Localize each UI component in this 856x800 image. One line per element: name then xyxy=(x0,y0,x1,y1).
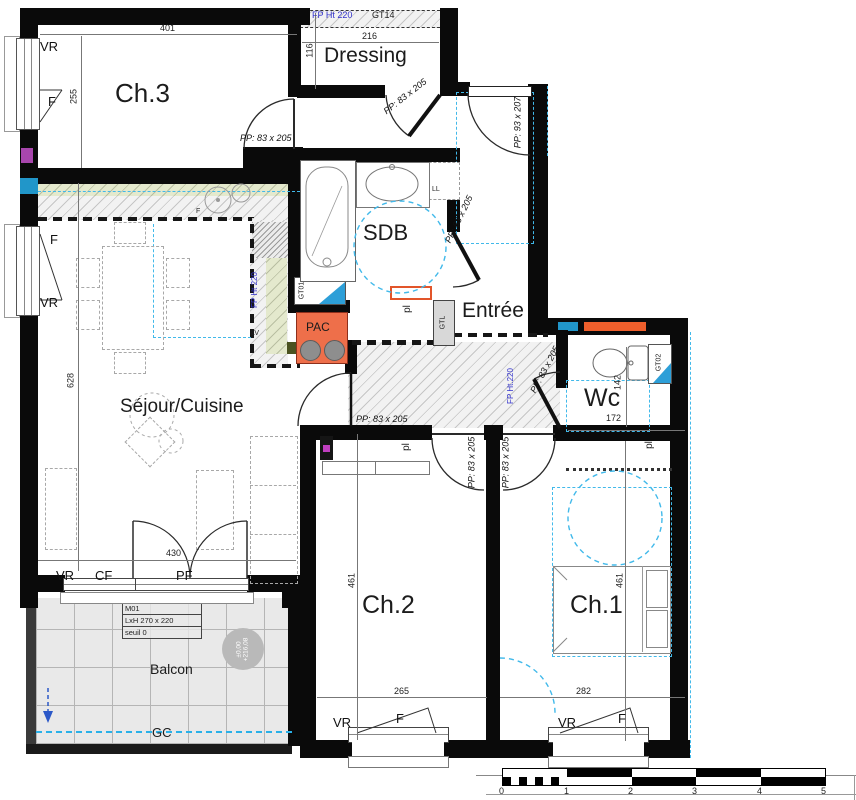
scale-seg-1 xyxy=(503,777,567,785)
scale-seg-5 xyxy=(761,777,825,785)
window-label-vr: VR xyxy=(333,716,351,729)
bathtub-basin xyxy=(306,167,348,267)
dishwasher-label: LV xyxy=(251,330,259,337)
room-label-sejour: Séjour/Cuisine xyxy=(120,397,244,416)
gt14-label: GT14 xyxy=(372,11,395,20)
room-label-ch1: Ch.1 xyxy=(570,593,623,618)
window-label-vr: VR xyxy=(558,716,576,729)
door-arc-ch1 xyxy=(503,438,555,490)
glazing-label-hall: FP Ht.220 xyxy=(507,363,515,409)
dim-line xyxy=(626,347,627,427)
door-leaf-dressing xyxy=(409,95,440,136)
sheet-frame-corner xyxy=(854,775,855,800)
room-label-entree: Entrée xyxy=(462,300,524,321)
dim-line xyxy=(625,441,626,741)
door-leaf-sdb xyxy=(453,232,479,280)
dim-label-401: 401 xyxy=(160,24,175,33)
dim-line xyxy=(81,36,82,168)
window-label-vr: VR xyxy=(40,296,58,309)
dim-label-282: 282 xyxy=(576,687,591,696)
room-label-balcon: Balcon xyxy=(150,662,193,676)
dim-label-255: 255 xyxy=(70,87,79,107)
kitchen-sink-drain xyxy=(216,198,220,202)
dim-label-461-ch1: 461 xyxy=(616,571,625,591)
door-arc-sdb xyxy=(453,280,479,287)
dim-label-628: 628 xyxy=(67,371,76,391)
toilet-tank xyxy=(628,346,648,380)
glazing-label-kitchen: FP Ht 220 xyxy=(251,267,259,313)
door-arc-sejour xyxy=(298,373,351,426)
scale-bar xyxy=(502,768,826,786)
door-label-entrance: PP: 93 x 207 xyxy=(514,93,523,153)
glazing-label-top: FP Ht 220 xyxy=(312,11,352,20)
window-label-pf: PF xyxy=(176,569,193,582)
dim-line xyxy=(38,560,296,561)
dim-line xyxy=(78,183,79,571)
washbasin xyxy=(366,167,418,201)
dim-label-142: 142 xyxy=(614,373,623,393)
french-door-arc-right xyxy=(190,521,247,578)
dim-line xyxy=(302,42,439,43)
dim-label-116: 116 xyxy=(306,41,315,61)
sheet-frame-line xyxy=(486,794,856,795)
floor-plan: M01 LxH 270 x 220 seuil 0 ±0,00 +216,08 xyxy=(0,0,856,800)
window-label-f: F xyxy=(50,233,58,246)
dim-label-430: 430 xyxy=(166,549,181,558)
ch1-turning-circle xyxy=(568,471,662,565)
room-label-sdb: SDB xyxy=(363,222,408,244)
window-label-f: F xyxy=(618,712,626,725)
kitchen-sink-bowl-small xyxy=(232,184,250,202)
dim-line xyxy=(357,434,358,740)
room-label-ch2: Ch.2 xyxy=(362,593,415,618)
plant xyxy=(159,429,183,453)
bathtub-slope-line xyxy=(312,186,342,256)
dim-label-461-ch2: 461 xyxy=(348,571,357,591)
window-label-cf: CF xyxy=(95,569,112,582)
drain-arrow-head xyxy=(43,711,53,723)
door-label-ch1: PP: 83 x 205 xyxy=(502,433,511,493)
window-label-vr: VR xyxy=(56,569,74,582)
door-label-ch2: PP: 83 x 205 xyxy=(468,433,477,493)
bathtub-drain xyxy=(323,258,331,266)
closet-label-sdb: pl xyxy=(403,299,413,319)
dim-line xyxy=(317,697,487,698)
label-gc: GC xyxy=(152,726,172,739)
dim-line xyxy=(40,34,297,35)
ch1-door-clearance-arc xyxy=(500,658,555,713)
scale-seg-2 xyxy=(567,769,631,777)
scale-seg-3 xyxy=(632,777,696,785)
door-label-sejour: PP: 83 x 205 xyxy=(356,415,408,424)
sdb-turning-circle xyxy=(354,201,446,293)
dim-line xyxy=(568,430,685,431)
dim-label-172: 172 xyxy=(606,414,621,423)
oven-label: F xyxy=(196,208,200,215)
dim-line xyxy=(315,13,316,89)
bed-fold-lines xyxy=(553,566,567,652)
closet-label-ch1: pl xyxy=(645,435,655,455)
window-label-f: F xyxy=(48,95,56,108)
washer-label: LL xyxy=(432,186,440,193)
room-label-dressing: Dressing xyxy=(324,45,407,66)
dim-line xyxy=(500,697,685,698)
closet-label-ch2: pl xyxy=(402,437,412,457)
dim-label-265: 265 xyxy=(394,687,409,696)
window-label-vr: VR xyxy=(40,40,58,53)
room-label-ch3: Ch.3 xyxy=(115,80,170,106)
door-label-ch3: PP: 83 x 205 xyxy=(240,134,292,143)
dim-label-216: 216 xyxy=(362,32,377,41)
scale-seg-4 xyxy=(696,769,760,777)
window-label-f: F xyxy=(396,712,404,725)
